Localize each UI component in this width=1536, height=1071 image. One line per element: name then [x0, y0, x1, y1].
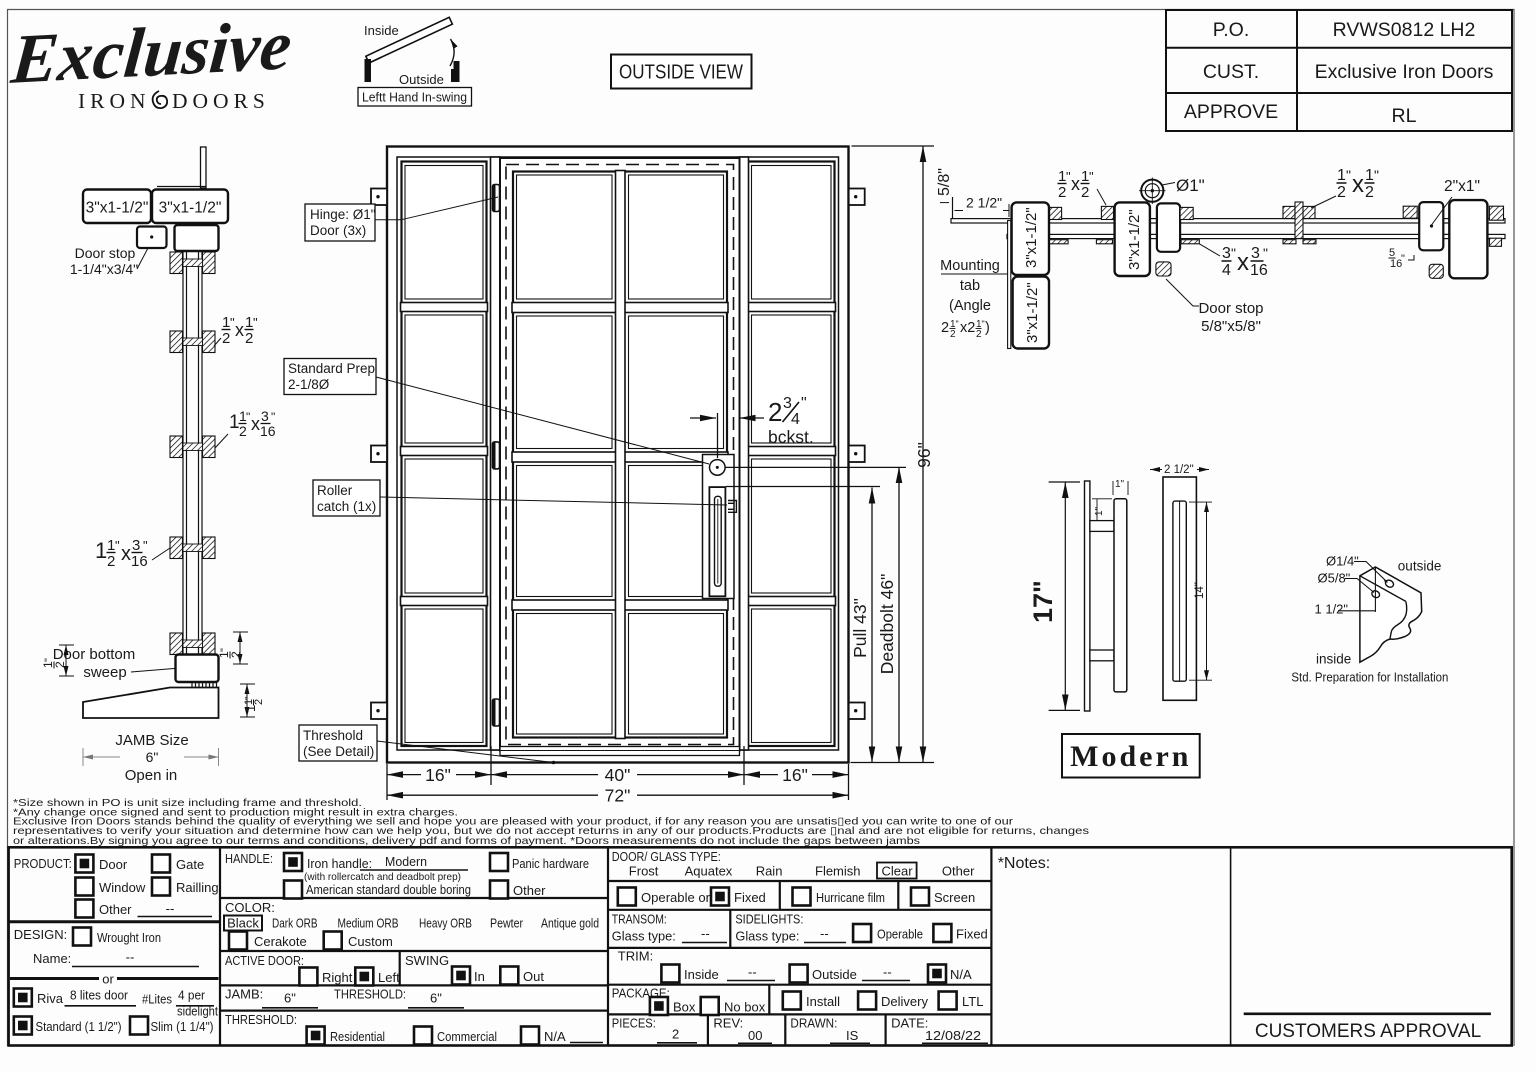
svg-text:3: 3 — [261, 408, 269, 424]
svg-text:x: x — [121, 543, 131, 565]
svg-text:IRON: IRON — [78, 89, 151, 113]
svg-text:Install: Install — [806, 994, 840, 1009]
svg-text:1 1/2": 1 1/2" — [1315, 602, 1349, 617]
svg-text:x: x — [1352, 171, 1364, 198]
svg-text:Door stop: Door stop — [75, 245, 136, 261]
svg-text:--: -- — [166, 901, 175, 916]
svg-text:Standard (1 1/2"): Standard (1 1/2") — [36, 1020, 122, 1034]
svg-text:HANDLE:: HANDLE: — [225, 851, 273, 866]
svg-text:2: 2 — [245, 330, 253, 347]
svg-text:Box: Box — [673, 1000, 696, 1015]
svg-text:Commercial: Commercial — [437, 1029, 497, 1044]
svg-text:N/A: N/A — [950, 967, 972, 982]
svg-text:1: 1 — [1365, 167, 1374, 184]
svg-text:#Lites: #Lites — [142, 992, 172, 1007]
svg-text:4: 4 — [1222, 262, 1231, 279]
svg-text:outside: outside — [1398, 559, 1442, 574]
svg-text:6": 6" — [146, 749, 159, 765]
svg-text:CUST.: CUST. — [1203, 61, 1259, 83]
svg-text:Wrought Iron: Wrought Iron — [97, 930, 161, 945]
svg-text:2: 2 — [53, 661, 67, 668]
svg-text:": " — [956, 319, 959, 329]
svg-text:or alterations.By signing you: or alterations.By signing you agree to o… — [13, 836, 920, 847]
svg-text:Other: Other — [942, 864, 975, 879]
svg-text:Operable or: Operable or — [641, 890, 711, 905]
svg-text:Frost: Frost — [629, 864, 659, 879]
svg-text:6": 6" — [430, 991, 442, 1006]
svg-text:1": 1" — [1115, 479, 1125, 490]
svg-text:Hinge: Ø1": Hinge: Ø1" — [310, 207, 376, 222]
svg-text:--: -- — [883, 965, 892, 980]
svg-text:2: 2 — [107, 553, 115, 570]
svg-text:": " — [115, 538, 120, 553]
svg-text:Glass type:: Glass type: — [612, 929, 676, 944]
svg-text:CUSTOMERS APPROVAL: CUSTOMERS APPROVAL — [1255, 1021, 1481, 1042]
svg-text:": " — [219, 648, 231, 652]
svg-text:14": 14" — [1194, 582, 1206, 599]
svg-text:8 lites door: 8 lites door — [70, 988, 129, 1003]
svg-text:Gate: Gate — [176, 857, 204, 872]
svg-text:Ø1": Ø1" — [1176, 176, 1205, 195]
svg-text:1: 1 — [229, 412, 240, 433]
svg-text:3"x1-1/2": 3"x1-1/2" — [1023, 207, 1040, 268]
svg-text:3: 3 — [783, 395, 792, 412]
svg-text:Modern: Modern — [385, 854, 427, 869]
svg-text:Door (3x): Door (3x) — [310, 223, 366, 238]
svg-text:": " — [1231, 245, 1236, 261]
svg-text:Fixed: Fixed — [734, 890, 766, 905]
svg-text:2: 2 — [768, 397, 782, 427]
svg-text:1: 1 — [95, 538, 107, 563]
svg-text:PRODUCT:: PRODUCT: — [14, 856, 72, 871]
svg-text:APPROVE: APPROVE — [1184, 101, 1278, 123]
svg-text:*Notes:: *Notes: — [998, 855, 1050, 872]
svg-text:DESIGN:: DESIGN: — [14, 927, 67, 942]
svg-text:Iron handle:: Iron handle: — [307, 856, 372, 871]
svg-text:No box: No box — [724, 1000, 766, 1015]
svg-text:Residential: Residential — [330, 1029, 385, 1044]
svg-text:Other: Other — [99, 902, 132, 917]
svg-text:Screen: Screen — [934, 890, 975, 905]
svg-text:Open in: Open in — [125, 767, 178, 784]
svg-text:Right: Right — [322, 970, 353, 985]
svg-text:catch (1x): catch (1x) — [317, 499, 376, 514]
svg-text:Out: Out — [523, 969, 544, 984]
svg-text:": " — [1089, 169, 1094, 184]
svg-text:SIDELIGHTS:: SIDELIGHTS: — [735, 912, 803, 927]
svg-text:": " — [801, 395, 807, 412]
svg-text:IS: IS — [846, 1028, 859, 1043]
svg-text:Leftt Hand In-swing: Leftt Hand In-swing — [362, 90, 467, 105]
svg-text:Window: Window — [99, 880, 146, 895]
svg-text:12/08/22: 12/08/22 — [925, 1028, 981, 1043]
svg-text:2 1/2": 2 1/2" — [1164, 464, 1194, 476]
svg-text:--: -- — [748, 965, 757, 980]
svg-text:THRESHOLD:: THRESHOLD: — [225, 1012, 297, 1027]
svg-text:16: 16 — [260, 423, 276, 439]
svg-text:DOOR/ GLASS TYPE:: DOOR/ GLASS TYPE: — [612, 849, 721, 864]
svg-text:JAMB:: JAMB: — [225, 987, 263, 1002]
svg-text:00: 00 — [748, 1028, 762, 1043]
svg-text:6": 6" — [284, 991, 296, 1006]
svg-text:Medium ORB: Medium ORB — [338, 916, 399, 931]
svg-text:--: -- — [126, 950, 135, 965]
svg-text:Pewter: Pewter — [490, 916, 524, 931]
svg-text:": " — [43, 658, 55, 662]
svg-text:2: 2 — [1365, 184, 1374, 201]
svg-text:Dark ORB: Dark ORB — [272, 916, 318, 931]
svg-text:inside: inside — [1316, 652, 1351, 667]
svg-text:Exclusive Iron Doors: Exclusive Iron Doors — [1315, 61, 1494, 83]
svg-text:": " — [244, 696, 255, 700]
svg-text:Antique gold: Antique gold — [541, 916, 599, 931]
svg-text:": " — [246, 410, 250, 424]
svg-text:or: or — [102, 972, 114, 987]
svg-text:Operable: Operable — [877, 927, 923, 942]
svg-text:Std. Preparation for Installat: Std. Preparation for Installation — [1291, 670, 1448, 685]
svg-text:x2: x2 — [960, 320, 975, 336]
svg-text:2: 2 — [941, 320, 949, 336]
svg-text:3"x1-1/2": 3"x1-1/2" — [1024, 282, 1041, 343]
svg-text:Exclusive: Exclusive — [7, 6, 294, 99]
svg-text:3"x1-1/2": 3"x1-1/2" — [86, 200, 149, 217]
svg-text:American standard double borin: American standard double boring — [306, 883, 471, 897]
svg-text:OUTSIDE VIEW: OUTSIDE VIEW — [619, 61, 744, 84]
svg-text:Left: Left — [378, 970, 400, 985]
svg-text:ACTIVE DOOR:: ACTIVE DOOR: — [225, 953, 304, 968]
svg-text:16: 16 — [131, 553, 148, 570]
svg-text:2: 2 — [222, 330, 230, 347]
svg-text:sweep: sweep — [83, 664, 126, 681]
svg-text:3: 3 — [132, 537, 140, 554]
svg-text:1-1/4"x3/4": 1-1/4"x3/4" — [70, 261, 138, 277]
svg-text:Fixed: Fixed — [956, 927, 988, 942]
svg-text:): ) — [985, 320, 990, 336]
svg-text:PIECES:: PIECES: — [612, 1016, 656, 1031]
svg-text:Railling: Railling — [176, 880, 219, 895]
svg-text:In: In — [474, 969, 485, 984]
svg-text:4 per: 4 per — [178, 988, 206, 1003]
svg-text:": " — [1346, 167, 1351, 183]
svg-text:N/A: N/A — [544, 1029, 566, 1044]
svg-text:17": 17" — [1028, 580, 1058, 623]
svg-text:Modern: Modern — [1070, 740, 1191, 773]
svg-text:Riva: Riva — [37, 991, 64, 1006]
svg-text:DOORS: DOORS — [172, 89, 270, 113]
svg-text:2 1/2": 2 1/2" — [966, 195, 1002, 211]
svg-text:COLOR:: COLOR: — [225, 900, 275, 915]
svg-text:x: x — [251, 414, 260, 434]
svg-text:THRESHOLD:: THRESHOLD: — [334, 987, 406, 1002]
svg-text:Ø1/4": Ø1/4" — [1326, 553, 1359, 568]
svg-text:(See Detail): (See Detail) — [303, 744, 374, 759]
svg-text:x: x — [1071, 174, 1080, 194]
svg-text:Flemish: Flemish — [815, 864, 861, 879]
svg-text:Hurricane film: Hurricane film — [816, 890, 885, 905]
svg-text:5/8": 5/8" — [936, 168, 953, 196]
svg-text:Pull 43": Pull 43" — [850, 598, 870, 658]
svg-text:Glass type:: Glass type: — [735, 929, 799, 944]
svg-text:5/8"x5/8": 5/8"x5/8" — [1201, 318, 1261, 335]
svg-text:TRANSOM:: TRANSOM: — [612, 912, 667, 927]
svg-text:2: 2 — [229, 651, 243, 658]
svg-text:3"x1-1/2": 3"x1-1/2" — [1126, 209, 1143, 270]
svg-text:Deadbolt 46": Deadbolt 46" — [877, 574, 897, 675]
svg-text:(Angle: (Angle — [949, 298, 991, 314]
svg-text:Inside: Inside — [364, 23, 399, 38]
svg-text:Door: Door — [99, 857, 128, 872]
svg-text:Other: Other — [513, 883, 546, 898]
svg-text:16": 16" — [782, 765, 808, 785]
svg-text:Delivery: Delivery — [881, 994, 928, 1009]
svg-text:Heavy ORB: Heavy ORB — [419, 916, 472, 931]
svg-text:3: 3 — [1222, 245, 1231, 262]
svg-text:2: 2 — [1058, 184, 1066, 201]
svg-text:4: 4 — [791, 411, 800, 428]
svg-text:2: 2 — [950, 329, 956, 340]
svg-text:Outside: Outside — [812, 967, 857, 982]
svg-text:": " — [143, 538, 148, 553]
svg-text:RVWS0812 LH2: RVWS0812 LH2 — [1333, 19, 1476, 41]
svg-text:Black: Black — [227, 916, 259, 931]
svg-text:--: -- — [701, 926, 710, 941]
svg-text:3"x1-1/2": 3"x1-1/2" — [159, 200, 222, 217]
svg-text:": " — [1263, 245, 1268, 261]
svg-text:LTL: LTL — [962, 994, 983, 1009]
svg-text:x: x — [1237, 249, 1249, 276]
svg-text:40": 40" — [605, 765, 631, 785]
svg-text:": " — [253, 315, 258, 330]
svg-text:2: 2 — [1081, 184, 1089, 201]
svg-text:3: 3 — [1251, 245, 1260, 262]
svg-text:2: 2 — [672, 1027, 679, 1042]
svg-text:2-1/8Ø: 2-1/8Ø — [288, 377, 330, 392]
svg-text:tab: tab — [960, 278, 980, 294]
svg-text:": " — [271, 410, 275, 424]
svg-text:Clear: Clear — [881, 864, 913, 879]
svg-text:P.O.: P.O. — [1213, 19, 1250, 41]
svg-text:bckst.: bckst. — [768, 427, 814, 447]
svg-text:Rain: Rain — [756, 864, 783, 879]
svg-text:Inside: Inside — [684, 967, 719, 982]
svg-text:": " — [1374, 167, 1379, 183]
svg-text:Custom: Custom — [348, 934, 393, 949]
svg-text:2: 2 — [976, 329, 982, 340]
svg-text:(with rollercatch and deadbolt: (with rollercatch and deadbolt prep) — [304, 871, 461, 883]
svg-text:2: 2 — [1337, 184, 1346, 201]
svg-text:x: x — [235, 320, 244, 340]
svg-text:Roller: Roller — [317, 483, 353, 498]
svg-text:REV:: REV: — [713, 1016, 743, 1031]
svg-text:2: 2 — [239, 423, 247, 439]
svg-text:Door bottom: Door bottom — [53, 646, 136, 663]
svg-text:2"x1": 2"x1" — [1444, 178, 1480, 195]
svg-text:Standard Prep: Standard Prep — [288, 361, 375, 376]
svg-text:96": 96" — [914, 442, 934, 468]
svg-text:Panic hardware: Panic hardware — [512, 856, 589, 871]
svg-text:SWING: SWING — [405, 953, 449, 968]
svg-text:Cerakote: Cerakote — [254, 934, 307, 949]
svg-text:1": 1" — [1094, 506, 1105, 516]
svg-text:--: -- — [820, 926, 829, 941]
svg-text:Mounting: Mounting — [940, 258, 1000, 274]
svg-text:72": 72" — [605, 786, 631, 806]
svg-text:JAMB Size: JAMB Size — [115, 732, 188, 749]
svg-text:16: 16 — [1250, 262, 1268, 279]
svg-text:DATE:: DATE: — [891, 1016, 928, 1031]
svg-text:TRIM:: TRIM: — [618, 949, 653, 964]
svg-text:Aquatex: Aquatex — [685, 864, 733, 879]
svg-text:Name:: Name: — [33, 951, 71, 966]
svg-text:Threshold: Threshold — [303, 728, 363, 743]
svg-text:16": 16" — [425, 765, 451, 785]
svg-text:Door stop: Door stop — [1198, 300, 1263, 317]
svg-text:Slim (1 1/4"): Slim (1 1/4") — [151, 1020, 214, 1034]
svg-text:RL: RL — [1392, 105, 1417, 127]
svg-text:sidelight: sidelight — [177, 1004, 218, 1019]
svg-text:": " — [1401, 253, 1405, 265]
svg-text:Outside: Outside — [399, 72, 444, 87]
svg-text:1: 1 — [1337, 167, 1346, 184]
svg-text:DRAWN:: DRAWN: — [790, 1016, 837, 1031]
